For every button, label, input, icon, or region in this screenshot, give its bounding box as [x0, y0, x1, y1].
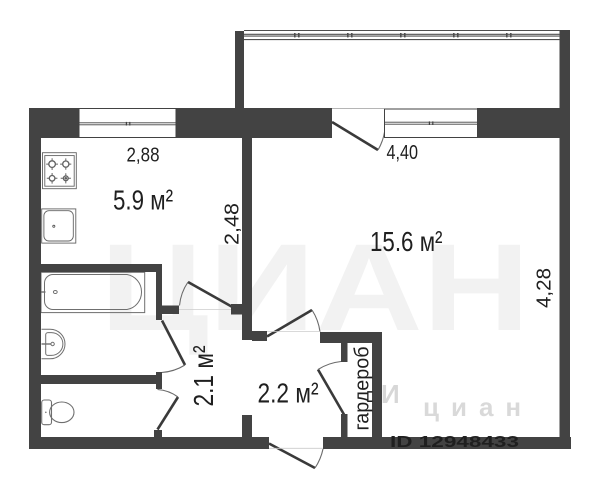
svg-text:15.6 м²: 15.6 м²	[370, 226, 443, 257]
svg-text:2,88: 2,88	[127, 144, 160, 167]
svg-text:циан: циан	[423, 392, 533, 422]
svg-text:ID 12948433: ID 12948433	[390, 434, 520, 451]
svg-text:2,48: 2,48	[221, 203, 244, 245]
svg-text:4,40: 4,40	[387, 142, 419, 164]
svg-text:гардероб: гардероб	[352, 347, 374, 431]
svg-text:2.2 м²: 2.2 м²	[258, 378, 319, 409]
svg-text:ЦИАН: ЦИАН	[100, 219, 530, 357]
svg-text:5.9 м²: 5.9 м²	[113, 185, 173, 216]
svg-text:И: И	[381, 379, 400, 409]
svg-text:4,28: 4,28	[533, 268, 556, 308]
svg-text:2.1 м²: 2.1 м²	[188, 346, 219, 407]
